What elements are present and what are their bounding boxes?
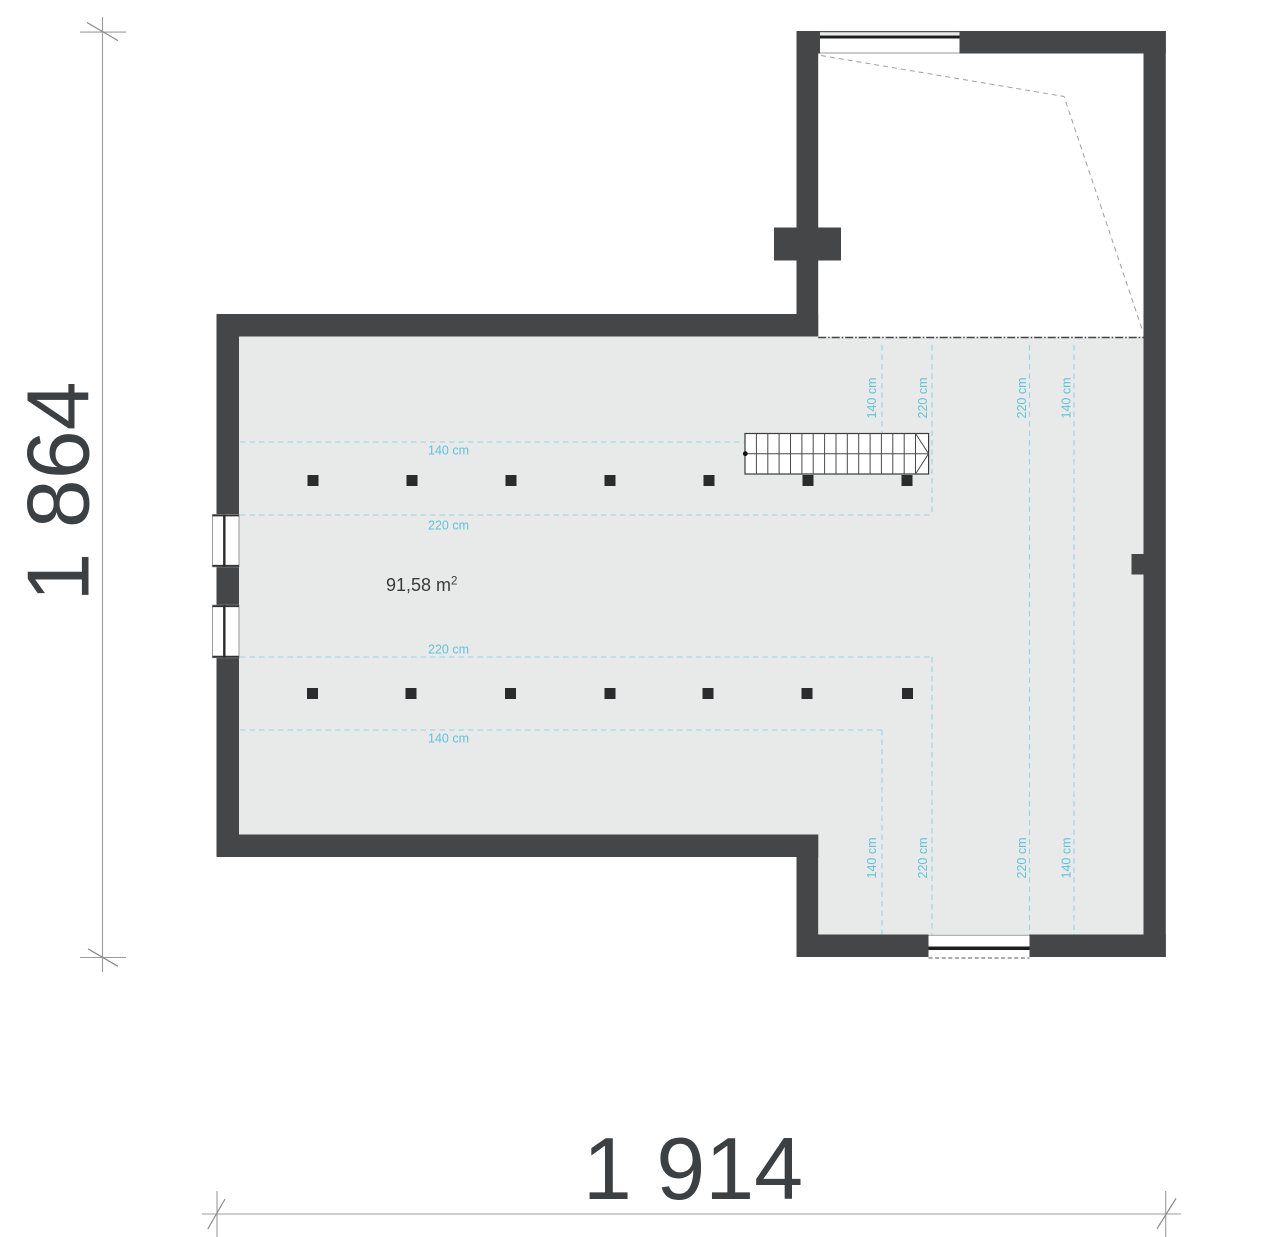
svg-text:220 cm: 220 cm [428, 519, 469, 533]
svg-text:220 cm: 220 cm [428, 643, 469, 657]
svg-text:140 cm: 140 cm [865, 838, 879, 879]
svg-text:220 cm: 220 cm [916, 378, 930, 419]
svg-text:220 cm: 220 cm [1015, 378, 1029, 419]
svg-text:220 cm: 220 cm [1015, 838, 1029, 879]
svg-text:140 cm: 140 cm [1060, 838, 1074, 879]
svg-text:140 cm: 140 cm [428, 444, 469, 458]
svg-text:140 cm: 140 cm [1060, 378, 1074, 419]
svg-text:91,58 m2: 91,58 m2 [386, 575, 457, 595]
svg-text:140 cm: 140 cm [865, 378, 879, 419]
svg-text:1 864: 1 864 [9, 381, 108, 601]
svg-text:140 cm: 140 cm [428, 732, 469, 746]
svg-text:1 914: 1 914 [583, 1119, 803, 1218]
svg-text:220 cm: 220 cm [916, 838, 930, 879]
